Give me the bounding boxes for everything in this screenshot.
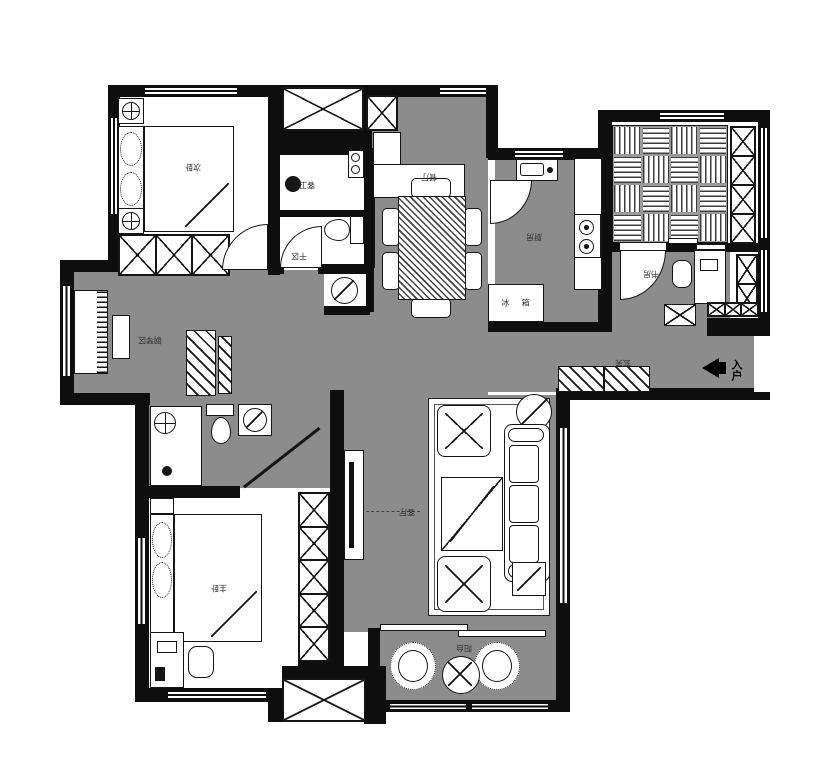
- tall-cabinet: [730, 126, 756, 244]
- dining-chair: [464, 252, 482, 290]
- wall: [318, 264, 368, 274]
- room-label-balcony: 阳台: [456, 643, 472, 654]
- wardrobe-cell: [119, 235, 156, 275]
- sofa: [504, 424, 550, 582]
- window: [390, 702, 466, 711]
- table-line: [450, 486, 494, 542]
- rattan-chair: [474, 642, 520, 690]
- pot-slash: [520, 398, 548, 426]
- toilet-tank: [350, 216, 364, 244]
- parquet-cell: [642, 126, 671, 155]
- wall: [364, 666, 386, 724]
- room-label-dining: 餐厅: [421, 172, 437, 183]
- monitor-icon: [700, 259, 718, 271]
- window: [515, 149, 563, 159]
- cabinet-cell: [725, 303, 742, 316]
- shaft-box: [366, 95, 398, 131]
- room-label-foyer: 玄关: [615, 358, 631, 369]
- piano-bench: [112, 315, 130, 359]
- balcony-parquet-floor: [612, 125, 728, 243]
- cabinet-cell: [737, 255, 757, 284]
- dining-chair: [464, 208, 482, 246]
- sliding-door-panel: [380, 624, 468, 631]
- entry-label: 入户: [728, 359, 744, 381]
- chair-seat: [398, 650, 428, 682]
- cushion: [445, 413, 483, 449]
- parquet-cell: [642, 184, 671, 213]
- wardrobe-cell: [299, 493, 329, 527]
- wardrobe-cell: [299, 627, 329, 661]
- sofa-cushion: [509, 445, 539, 483]
- pillow-icon: [120, 172, 142, 206]
- faucet-icon: [547, 167, 553, 173]
- room-label-master-bedroom: 主卧: [211, 583, 227, 594]
- sink-basin: [520, 163, 544, 176]
- parquet-cell: [699, 155, 728, 184]
- hall-cabinet: [218, 336, 232, 394]
- parquet-cell: [613, 184, 642, 213]
- shaft-box: [282, 678, 366, 722]
- room-label-living: 客厅: [399, 507, 415, 518]
- window: [660, 111, 724, 121]
- window: [558, 428, 569, 603]
- desk-chair: [188, 646, 214, 678]
- pillow-icon: [152, 522, 172, 558]
- window: [168, 690, 266, 700]
- blanket-fold: [185, 183, 229, 227]
- sofa-cushion: [509, 485, 539, 523]
- kitchen-sink: [516, 159, 558, 181]
- burner-icon: [579, 220, 594, 235]
- floor-drain-icon: [162, 466, 172, 476]
- window: [61, 286, 72, 376]
- pillow-icon: [152, 562, 172, 598]
- parquet-cell: [670, 155, 699, 184]
- cabinet-cell: [731, 156, 755, 185]
- table-cross: [448, 662, 472, 686]
- entry-door-opening: [754, 336, 772, 392]
- round-table: [442, 656, 480, 694]
- room-label-guest-bathroom: 客卫: [299, 180, 315, 191]
- parquet-cell: [699, 126, 728, 155]
- dining-chair: [411, 298, 451, 318]
- cabinet-cell: [731, 127, 755, 156]
- cabinet-cell: [731, 185, 755, 214]
- sliding-door-panel: [668, 238, 698, 244]
- shoe-cabinet: [558, 366, 604, 392]
- room-label-secondary-bedroom: 次卧: [185, 162, 201, 173]
- hall-cabinet: [186, 330, 216, 396]
- rattan-chair: [390, 642, 436, 690]
- blanket-fold: [211, 591, 257, 637]
- armchair: [437, 405, 491, 457]
- tv-cabinet: [344, 450, 364, 560]
- wardrobe-cell: [299, 560, 329, 594]
- wardrobe-cell: [299, 527, 329, 561]
- pillow-icon: [120, 132, 142, 166]
- parquet-cell: [670, 126, 699, 155]
- cabinet-cell: [731, 214, 755, 243]
- wall: [707, 318, 765, 336]
- headboard-line: [173, 515, 175, 641]
- wall: [268, 95, 280, 275]
- window: [136, 538, 147, 624]
- table-line: [517, 567, 541, 591]
- wall: [330, 390, 344, 690]
- room-label-study: 书房: [643, 269, 659, 280]
- parquet-cell: [699, 184, 728, 213]
- entry-arrow-bar: [719, 362, 726, 374]
- dining-table: [398, 196, 466, 300]
- study-chair: [672, 260, 692, 288]
- room-label-dry-area: 干区: [291, 251, 307, 262]
- sofa-armrest: [508, 428, 544, 442]
- parquet-cell: [613, 126, 642, 155]
- cabinet-cell: [708, 303, 725, 316]
- side-table: [512, 562, 546, 596]
- wardrobe: [118, 234, 230, 276]
- shoe-cabinet: [604, 366, 650, 392]
- monitor-icon: [157, 641, 177, 653]
- sliding-door-panel: [458, 630, 546, 637]
- parquet-cell: [613, 155, 642, 184]
- window: [759, 128, 769, 238]
- wall: [488, 322, 612, 332]
- cabinet-cell: [741, 303, 758, 316]
- toilet-bowl: [211, 417, 231, 444]
- sofa-cushion: [509, 525, 539, 563]
- armchair: [437, 556, 491, 612]
- cushion: [445, 565, 483, 603]
- wall: [148, 486, 240, 498]
- window: [759, 250, 769, 312]
- washbasin: [331, 277, 358, 304]
- room-label-kitchen: 厨房: [526, 232, 542, 243]
- window: [145, 86, 237, 96]
- parquet-cell: [670, 184, 699, 213]
- corridor-floor: [324, 312, 368, 398]
- knob-icon: [351, 153, 360, 162]
- side-table: [664, 304, 696, 326]
- master-wardrobe: [298, 492, 330, 662]
- toilet-tank: [206, 404, 234, 416]
- study-desk: [694, 250, 726, 304]
- parquet-cell: [699, 213, 728, 242]
- stove: [574, 214, 601, 258]
- wall: [324, 306, 370, 315]
- wall: [604, 243, 620, 252]
- window: [440, 86, 486, 96]
- piano: [74, 290, 108, 374]
- shower-head-icon: [154, 412, 176, 434]
- toilet-bowl: [324, 219, 350, 241]
- burner-icon: [579, 239, 594, 254]
- parquet-cell: [642, 155, 671, 184]
- pc-tower-icon: [155, 667, 165, 681]
- basin-slash: [246, 411, 263, 428]
- tv-icon: [349, 462, 354, 548]
- desk: [150, 632, 184, 688]
- chair-seat: [482, 650, 512, 682]
- entry-arrow-icon: [702, 358, 719, 378]
- lamp-icon: [122, 102, 140, 120]
- appliance-label-fridge: 冰 箱: [501, 298, 534, 309]
- nightstand: [150, 498, 174, 514]
- knob-icon: [351, 165, 360, 174]
- wardrobe-cell: [299, 594, 329, 628]
- window: [472, 702, 548, 711]
- room-label-piano-area: 钢琴区: [138, 335, 162, 346]
- lamp-icon: [122, 212, 140, 230]
- parquet-cell: [613, 213, 642, 242]
- coffee-table: [441, 477, 503, 551]
- basin-slash: [334, 280, 354, 300]
- shaft-box: [282, 87, 364, 131]
- washbasin: [243, 408, 267, 432]
- floor-plan: 次卧 客卫 干区 餐厅 厨房 冰 箱 书房 玄关 入户 钢琴区 主卧 客厅 阳台: [0, 0, 827, 780]
- wardrobe-cell: [156, 235, 193, 275]
- low-cabinet: [707, 302, 759, 317]
- parquet-cell: [642, 213, 671, 242]
